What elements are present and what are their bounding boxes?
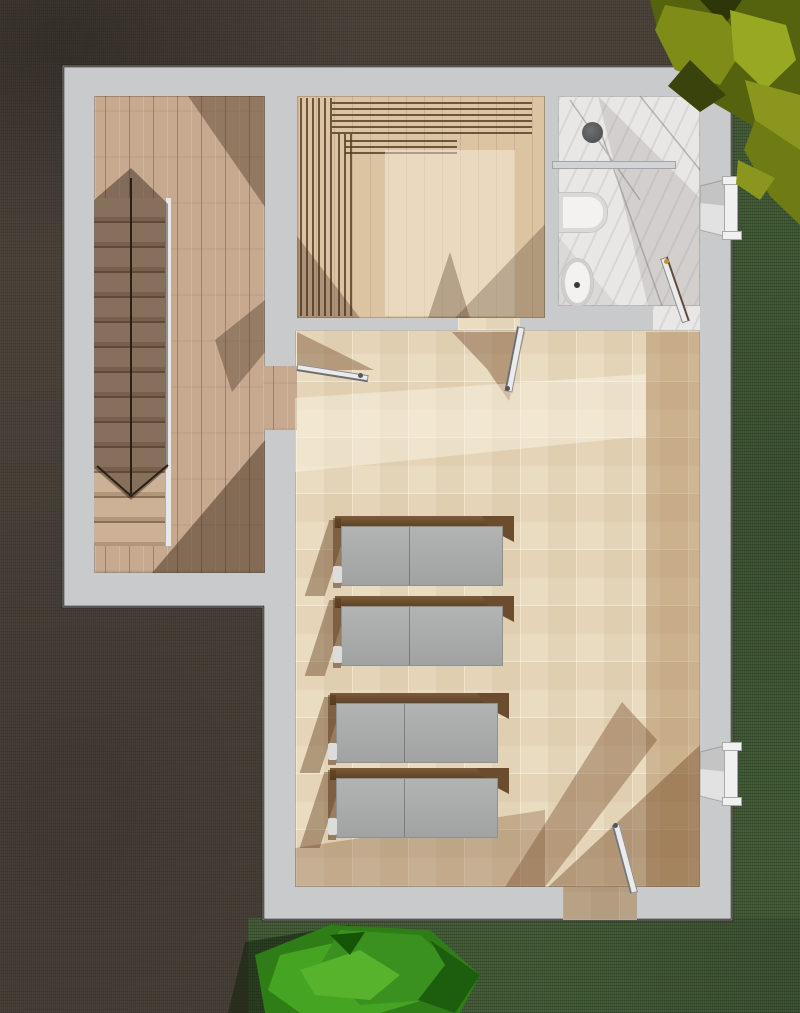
door-handle-icon [505,386,510,391]
door-handle-icon [358,373,363,378]
sauna-bench-top-slats [332,98,532,134]
staircase-treads [94,198,168,546]
lounge-window [724,743,738,805]
lounger [326,768,504,840]
door-handle-icon [664,259,669,264]
lounger [326,693,504,765]
lounger-pillow [328,818,337,835]
bathtub [558,192,608,233]
doorway-exterior [563,887,637,920]
floor-plan-render [0,0,800,1013]
lounger-pillow [328,743,337,760]
shower-drain-icon [582,122,603,143]
doorway-sauna [458,318,520,330]
door-handle-icon [613,823,618,828]
shower-partition [552,161,676,169]
doorway-stairhall [263,366,297,430]
lounger-pillow [333,566,342,583]
staircase-stringer [165,198,171,546]
bathroom-window [724,177,738,239]
lounger [331,516,509,588]
lounger [331,596,509,668]
lounger-pillow [333,646,342,663]
sauna-sunlight-patch [385,150,515,316]
sauna-bench-left-slats [300,98,334,316]
lounger-cushion [341,526,503,586]
sauna-bench-left-second-tier [338,134,352,316]
lawn-bottom [248,918,800,1013]
lounger-cushion [336,703,498,763]
lounger-cushion [336,778,498,838]
lounger-cushion [341,606,503,666]
lawn-right [728,0,800,1013]
toilet-flush-icon [574,282,580,288]
